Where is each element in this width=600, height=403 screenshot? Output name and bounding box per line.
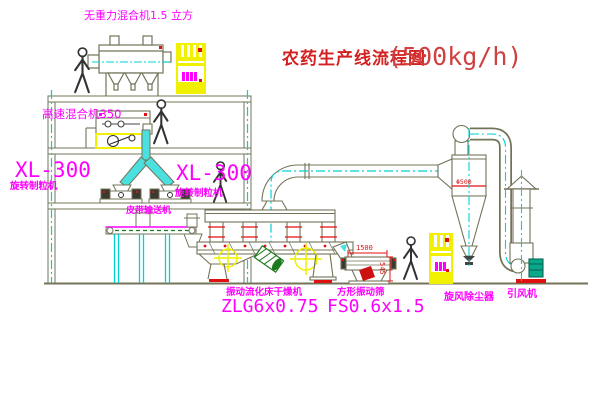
gravity-mixer [88, 36, 172, 96]
label-belt-conveyor: 皮带输送机 [126, 207, 171, 216]
cabinet-louver [178, 59, 204, 66]
diagram-capacity: (500kg/h) [387, 44, 522, 69]
cabinet-vent-stripes [431, 235, 451, 249]
label-granulator-left-name: 旋转制粒机 [10, 182, 58, 192]
label-high-speed-mixer: 高速混合机350 [42, 109, 121, 121]
label-granulator-right-model: XL-300 [176, 163, 252, 184]
cabinet-vent-stripes [178, 45, 204, 59]
cabinet-indicator [182, 72, 197, 81]
label-cyclone: 旋风除尘器 [444, 293, 494, 303]
control-cabinet-top [176, 43, 206, 94]
indicator-dot [198, 48, 202, 52]
label-gravity-mixer: 无重力混合机1.5 立方 [84, 10, 193, 21]
label-granulator-right-name: 旋转制粒机 [175, 189, 223, 199]
person-figure [154, 100, 167, 143]
cabinet-base [178, 82, 204, 92]
label-dryer-model: ZLG6x0.75 [221, 298, 319, 316]
person-figure [75, 48, 89, 92]
cabinet-louver [431, 249, 451, 256]
person-figure [404, 237, 417, 279]
control-cabinet-right [429, 233, 453, 284]
label-fan: 引风机 [507, 290, 537, 300]
flow-diagram: 农药生产线流程图 (500kg/h) 无重力混合机1.5 立方 高速混合机350… [0, 0, 600, 403]
dim-screen-length: 1500 [356, 245, 373, 252]
belt-conveyor-machine [106, 214, 202, 283]
label-granulator-left-model: XL-300 [15, 160, 91, 181]
granulator-left-machine [100, 189, 142, 203]
label-screen-model: FS0.6x1.5 [327, 298, 425, 316]
indicator-dot [445, 238, 449, 242]
cabinet-base [431, 272, 451, 282]
cabinet-indicator [435, 262, 446, 271]
dim-screen-height: 545 [378, 262, 385, 275]
dim-cyclone: Φ500 [456, 179, 472, 186]
